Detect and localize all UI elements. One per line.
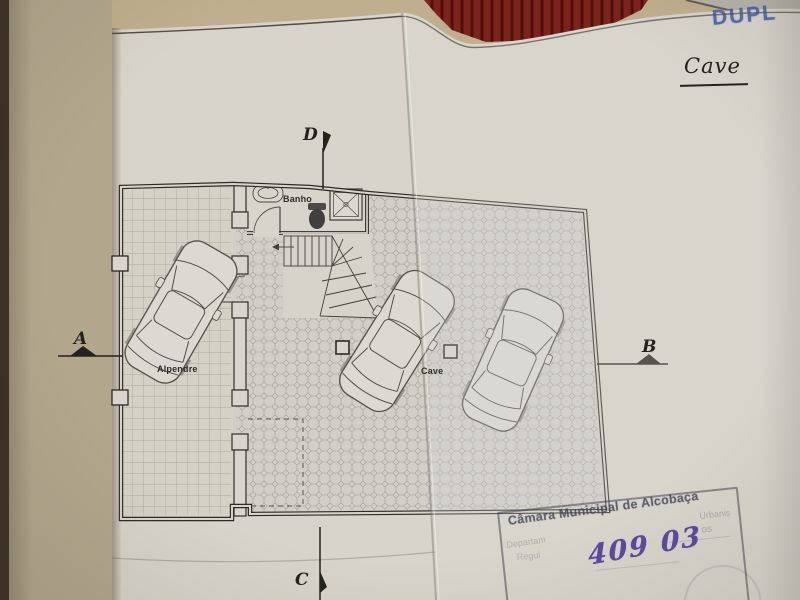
staircase-drawing: [272, 234, 378, 318]
bathroom-label: Banho: [283, 194, 312, 204]
section-marker-c: C: [295, 570, 309, 590]
folded-paper-edge: [9, 0, 112, 600]
section-marker-b: B: [642, 337, 656, 357]
stamp-department-fragment: Departam: [506, 534, 547, 549]
bathroom-door-opening: [253, 228, 279, 237]
stamp-department-fragment: os: [701, 524, 713, 536]
column: [112, 256, 128, 271]
section-marker-d: D: [303, 125, 318, 145]
toilet-drawing: [308, 203, 326, 229]
table-edge: [0, 0, 9, 600]
sheet-title: Cave: [684, 54, 741, 78]
stamp-department-fragment: Regul: [516, 550, 540, 562]
column: [112, 390, 128, 405]
column: [336, 341, 349, 354]
section-marker-a: A: [74, 329, 87, 349]
alpendre-label: Alpendre: [157, 364, 198, 374]
stamp-department-fragment: Urbanis: [699, 508, 731, 521]
photographed-floor-plan-page: DUPL Cave Banho Alpendre Cave A B C D Câ…: [0, 0, 800, 600]
cave-room-label: Cave: [421, 366, 443, 376]
